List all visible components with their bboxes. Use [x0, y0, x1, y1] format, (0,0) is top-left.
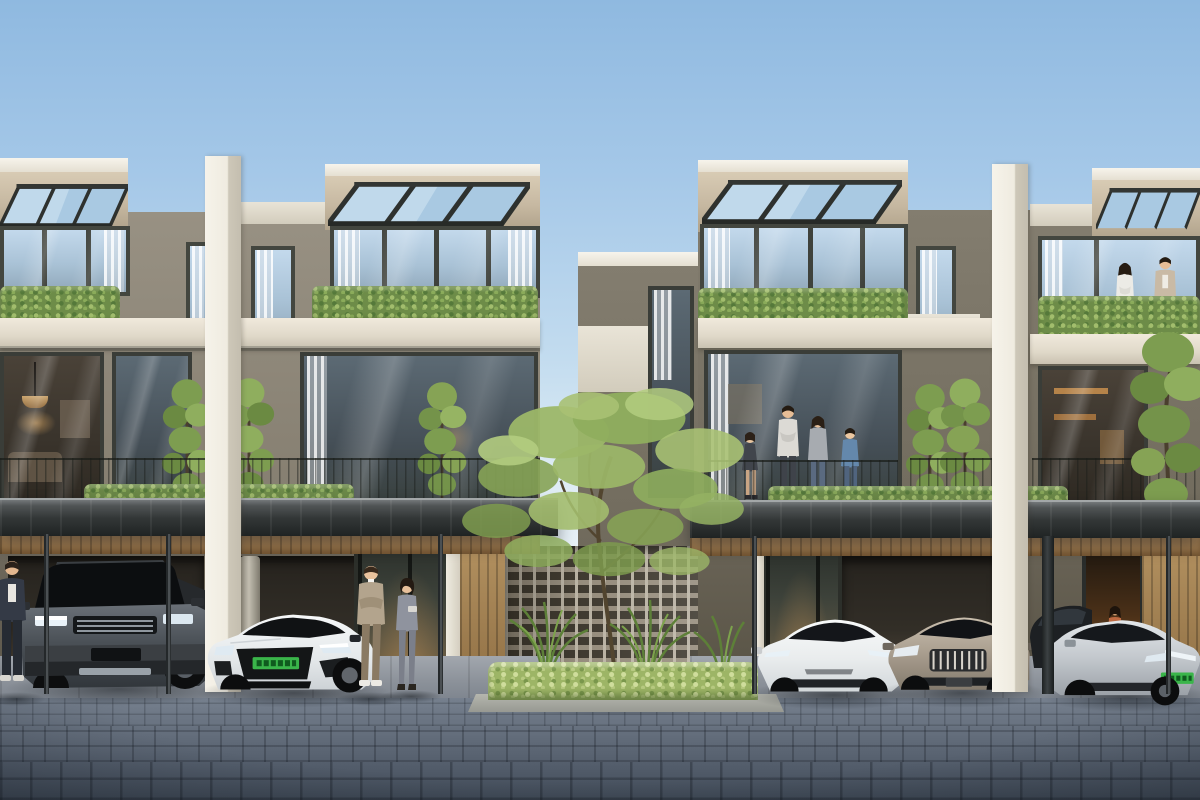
- terrace-window: [700, 224, 908, 298]
- architectural-rendering: [0, 0, 1200, 800]
- glass-pergola: [328, 182, 530, 226]
- canopy-post: [166, 534, 171, 694]
- balcony-slab: [698, 318, 992, 348]
- wall-art: [60, 400, 90, 438]
- silver-ev-fastback: [1044, 592, 1200, 708]
- canopy-post: [438, 534, 443, 694]
- canopy-post: [1042, 536, 1054, 694]
- canopy-post: [44, 534, 49, 694]
- setback-parapet: [1030, 204, 1094, 226]
- window-head: [0, 346, 540, 351]
- shelf-light: [1054, 414, 1096, 420]
- glass-pergola: [0, 184, 128, 228]
- glass-pergola: [1096, 188, 1200, 230]
- island-hedge: [488, 662, 758, 700]
- saleswoman: [386, 576, 428, 702]
- pendant-lamp: [22, 396, 48, 408]
- party-wall-fin: [992, 164, 1028, 692]
- canopy-post: [1166, 536, 1171, 694]
- balcony-slab: [0, 318, 540, 348]
- shelf-light: [1054, 388, 1108, 394]
- glass-pergola: [702, 180, 902, 224]
- canopy-post: [752, 536, 757, 694]
- pedestrian-left: [0, 558, 32, 700]
- setback-parapet: [238, 202, 330, 224]
